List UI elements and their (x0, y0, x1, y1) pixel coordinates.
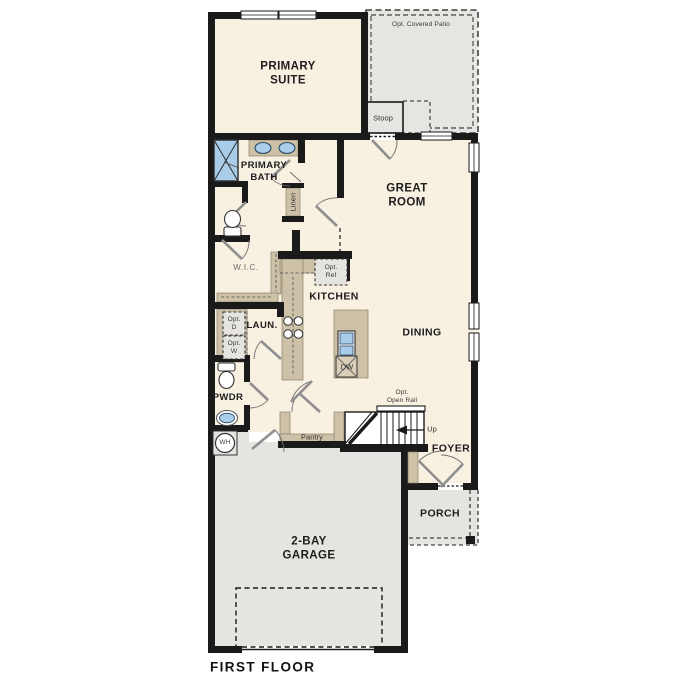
toilet-bowl (219, 372, 234, 389)
label-porch: PORCH (420, 507, 460, 520)
label-opt-open-rail: Opt. Open Rail (387, 389, 417, 405)
label-dw: DW (341, 362, 354, 371)
toilet-tank (224, 227, 241, 236)
porch-post (466, 536, 475, 544)
label-laundry: LAUN. (246, 320, 277, 332)
label-primary-suite: PRIMARY SUITE (260, 60, 315, 89)
pantry-shelf-right (334, 412, 344, 442)
label-opt-covered-patio: Opt. Covered Patio (392, 21, 450, 29)
label-linen: Linen (288, 193, 297, 212)
label-great-room: GREAT ROOM (386, 182, 427, 211)
toilet-bowl (225, 211, 241, 228)
label-wh: WH (219, 439, 230, 447)
staircase (345, 406, 425, 445)
label-kitchen: KITCHEN (309, 290, 358, 303)
floor-plan: Opt. Covered Patio Stoop PRIMARY SUITE G… (0, 0, 687, 687)
label-wic: W.I.C. (233, 263, 258, 273)
label-opt-w: Opt. W (228, 340, 241, 356)
vanity-sink (255, 143, 271, 154)
label-opt-d: Opt. D (228, 316, 241, 332)
patio-step-outline (403, 101, 430, 133)
label-garage: 2-BAY GARAGE (283, 535, 336, 564)
wic-shelf-bottom (217, 293, 278, 302)
toilet-tank (218, 363, 235, 371)
label-up: Up (427, 424, 437, 433)
label-primary-bath: PRIMARY BATH (241, 160, 287, 184)
floor-title: FIRST FLOOR (210, 660, 315, 675)
floor-plan-linework (0, 0, 687, 687)
vanity-sink (279, 143, 295, 154)
stair-rail (377, 406, 425, 411)
label-opt-ref: Opt. Ref (325, 264, 338, 280)
label-foyer: FOYER (432, 442, 470, 455)
label-pantry: Pantry (301, 432, 323, 441)
label-pwdr: PWDR (213, 392, 244, 404)
foyer-wall-finish (408, 452, 418, 483)
label-dining: DINING (402, 326, 441, 339)
label-stoop: Stoop (373, 113, 393, 122)
